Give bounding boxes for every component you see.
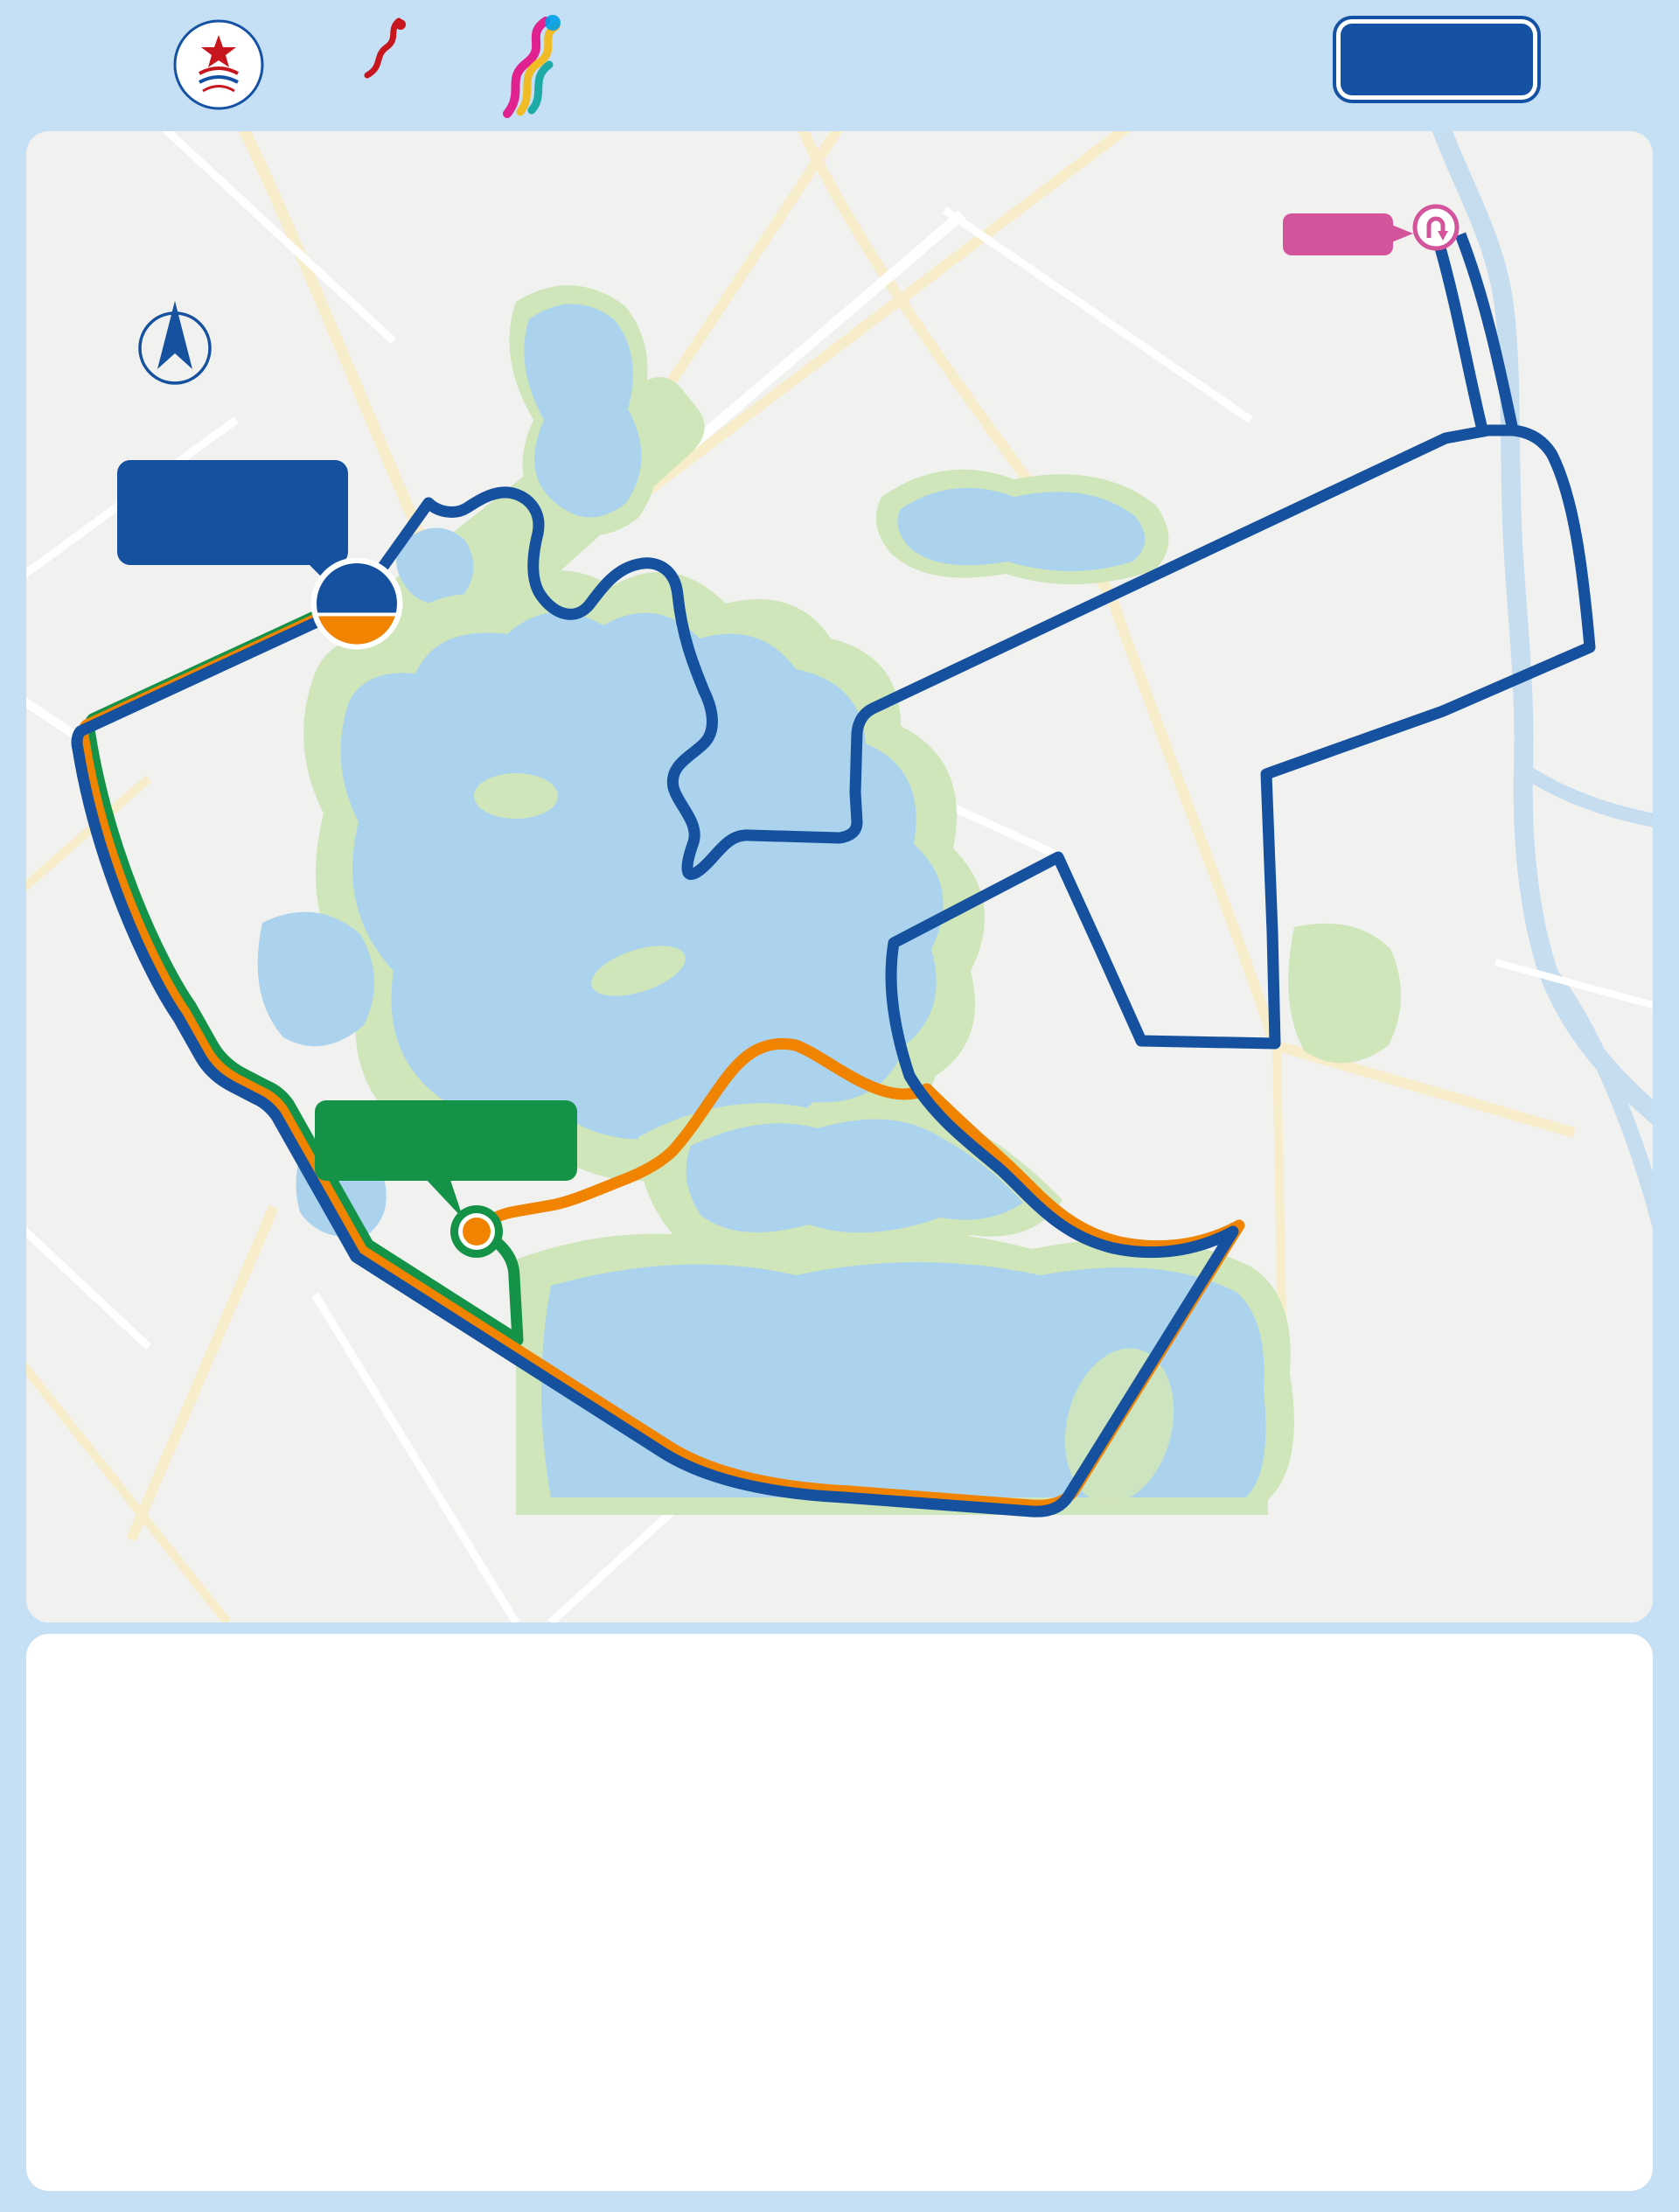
map-canvas — [26, 131, 1653, 1622]
footer-panel — [26, 1634, 1653, 2191]
china-marathon-logo — [289, 26, 402, 114]
u-turn-icon — [1415, 206, 1457, 248]
fun-run-finish-point — [450, 1205, 503, 1258]
route-map-badge — [1336, 19, 1537, 100]
route-descriptions — [57, 1755, 1012, 1784]
start-finish-badge — [314, 561, 400, 646]
event-logo — [472, 9, 586, 122]
runner-swoosh-icon — [357, 17, 409, 79]
caa-logo — [173, 19, 264, 110]
facility-legend — [1023, 1685, 1635, 1938]
poster-page: { "header": { "year": "2024", "title_zh"… — [0, 0, 1679, 2212]
header — [0, 0, 1679, 131]
elevation-chart — [966, 1944, 1386, 2170]
route-map — [26, 131, 1653, 1622]
